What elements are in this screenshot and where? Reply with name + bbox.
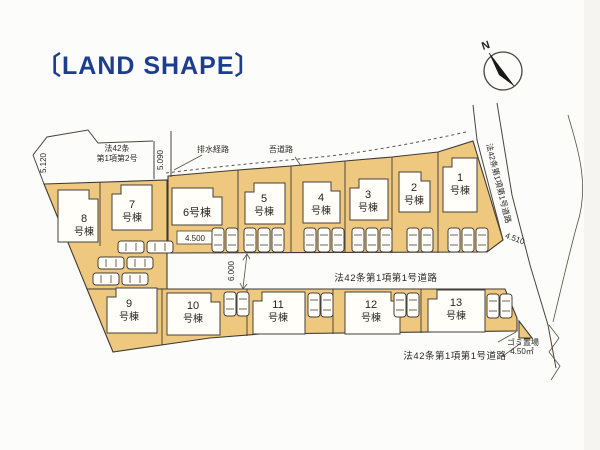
car-icon <box>93 273 119 285</box>
lot-3: 3号棟 <box>350 179 392 252</box>
edge-curve <box>553 115 583 322</box>
car-icon <box>407 293 419 317</box>
car-icon <box>321 293 333 317</box>
garbage-area-label-2: 4.50㎡ <box>510 347 534 356</box>
lot-9-label-number: 9 <box>126 298 132 310</box>
lot-13-label-number: 13 <box>450 297 462 309</box>
lot-8-label-number: 8 <box>81 213 87 225</box>
lot-5-label-number: 5 <box>261 193 267 205</box>
lot-5-label-suffix: 号棟 <box>254 205 274 218</box>
lot-10-label-suffix: 号棟 <box>183 312 203 325</box>
lot-1-label-suffix: 号棟 <box>450 184 470 197</box>
lot-10-label-number: 10 <box>187 300 199 312</box>
lot-2-label-suffix: 号棟 <box>404 194 424 207</box>
car-icon <box>421 228 433 252</box>
car-icon <box>212 228 224 252</box>
car-icon <box>407 228 419 252</box>
car-icon <box>127 257 153 269</box>
car-icon <box>394 293 406 317</box>
road-label-middle: 法42条第1項第1号道路 <box>334 272 437 284</box>
lot-13-label-suffix: 号棟 <box>446 309 466 322</box>
lot-4-label-number: 4 <box>318 192 324 204</box>
car-icon <box>476 228 488 252</box>
lot-7-label-suffix: 号棟 <box>122 211 142 224</box>
right-width-dim: 4.510 <box>504 231 526 246</box>
car-icon <box>272 228 284 252</box>
lot-7-label-number: 7 <box>129 199 135 211</box>
compass-icon: N <box>480 39 522 90</box>
lot-12-label-number: 12 <box>365 299 377 311</box>
car-icon <box>487 294 499 318</box>
car-icon <box>258 228 270 252</box>
car-icon <box>352 228 364 252</box>
break-line <box>549 325 560 380</box>
car-icon <box>147 241 173 253</box>
car-icon <box>98 257 124 269</box>
car-icon <box>224 292 236 316</box>
lot-12-label-suffix: 号棟 <box>361 311 381 324</box>
lot-3-label-suffix: 号棟 <box>358 201 378 214</box>
upper-width-dim: 5.090 <box>156 149 165 170</box>
garbage-area-label-1: ゴミ置場 <box>507 337 539 347</box>
car-icon <box>122 273 148 285</box>
car-icon <box>308 293 320 317</box>
lot-5: 5号棟 <box>244 183 285 252</box>
left-width-dim: 5.120 <box>39 152 48 173</box>
lot-11-label-suffix: 号棟 <box>268 311 288 324</box>
scan-shading <box>584 0 600 450</box>
road-label-top-left-1: 法42条 <box>105 143 130 153</box>
car-icon <box>332 228 344 252</box>
car-icon <box>448 228 460 252</box>
lot-2-label-number: 2 <box>411 182 417 194</box>
road-label-bottom: 法42条第1項第1号道路 <box>403 350 506 362</box>
lot-9-label-suffix: 号棟 <box>119 310 139 323</box>
car-icon <box>366 228 378 252</box>
north-label: N <box>480 39 491 53</box>
drainage-route-label: 排水経路 <box>197 144 229 154</box>
land-shape-diagram: 〔LAND SHAPE〕 N <box>0 0 600 450</box>
car-icon <box>237 292 249 316</box>
car-icon <box>380 228 392 252</box>
road-label-top: 吾道路 <box>269 144 293 154</box>
road-label-top-left-2: 第1項第2号 <box>97 153 138 163</box>
car-icon <box>462 228 474 252</box>
lot-4-label-suffix: 号棟 <box>311 204 331 217</box>
car-icon <box>226 228 238 252</box>
car-icon <box>500 294 512 318</box>
car-icon <box>244 228 256 252</box>
car-icon <box>304 228 316 252</box>
lot-3-label-number: 3 <box>365 189 371 201</box>
driveway-dim: 4.500 <box>185 234 206 243</box>
lot-6-label: 6号棟 <box>183 205 211 219</box>
garbage-area-shape <box>519 321 532 338</box>
road-width-dim: 6.000 <box>227 260 236 281</box>
lot-8-label-suffix: 号棟 <box>74 225 94 238</box>
page-title: 〔LAND SHAPE〕 <box>36 51 261 80</box>
lot-11-label-number: 11 <box>272 299 283 311</box>
car-icon <box>118 241 144 253</box>
car-icon <box>318 228 330 252</box>
lot-4: 4号棟 <box>303 182 344 252</box>
lot-1-label-number: 1 <box>457 172 463 184</box>
